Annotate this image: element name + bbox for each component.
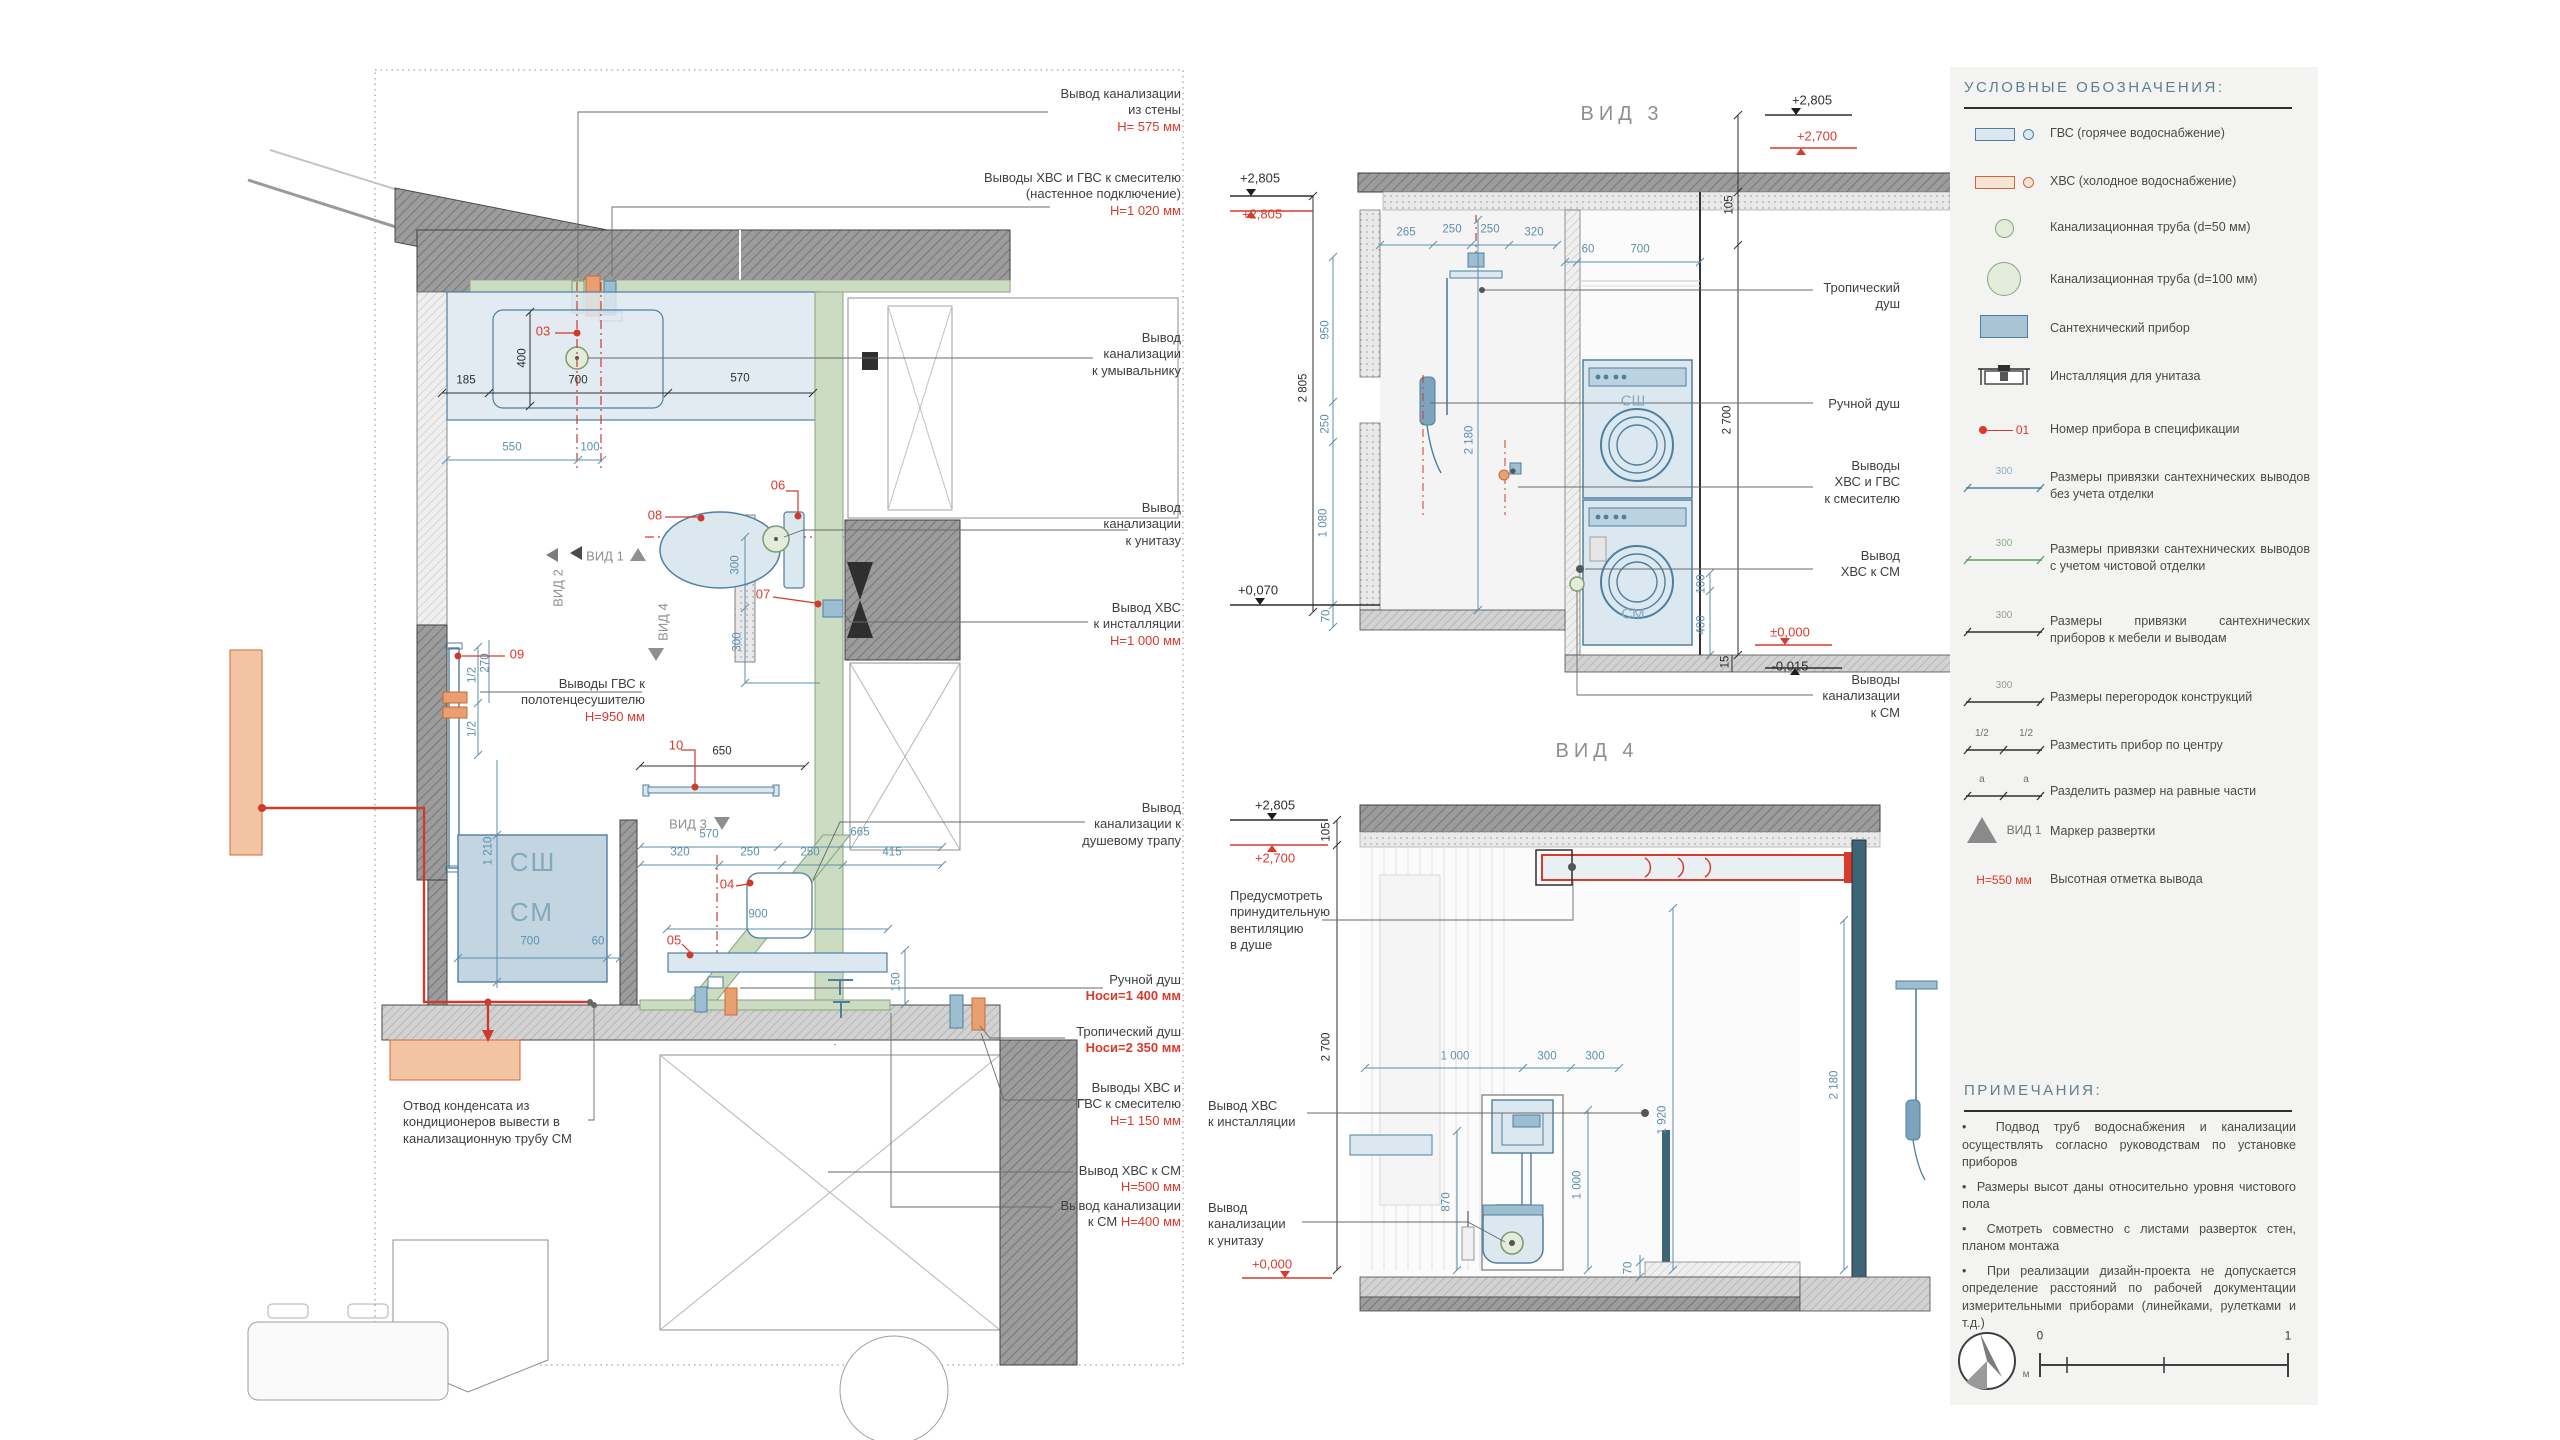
plan-vid4-label: ВИД 4 [657,603,670,641]
dim-green-icon: 300 [1958,549,2050,571]
v3-dim-700: 700 [1630,244,1649,256]
view1-arrow-left-icon [570,546,582,560]
v3-dim-400: 400 [1696,615,1708,634]
v4-dim-2180: 2 180 [1829,1071,1841,1100]
view4-arrow-down-icon [648,648,664,661]
callout-hvs-installation: Вывод ХВС к инсталляцииH=1 000 мм [1094,600,1181,649]
v3-dim-250b: 250 [1480,224,1499,236]
plan-dim-650: 650 [712,746,731,758]
legend-item: 300 Размеры привязки сантехнических выво… [1958,539,2310,575]
plan-dim-185: 185 [456,375,475,387]
number-icon: 01 [1958,419,2050,441]
legend-panel: УСЛОВНЫЕ ОБОЗНАЧЕНИЯ: ГВС (горячее водос… [1950,67,2318,1405]
v4-dim-300b: 300 [1585,1051,1604,1063]
pipe100-icon [1958,261,2050,297]
dim-equal-icon: a a [1958,785,2050,807]
v3-callout-hand-shower: Ручной душ [1828,396,1900,412]
legend-item: 300 Размеры привязки сантехнических приб… [1958,611,2310,647]
notes-rule [1964,1110,2292,1112]
legend-title: УСЛОВНЫЕ ОБОЗНАЧЕНИЯ: [1964,79,2225,96]
legend-item: 300 Размеры привязки сантехнических выво… [1958,467,2310,503]
plan-dim-60: 60 [592,936,605,948]
v3-level-bottomleft: +0,070 [1238,584,1278,597]
plan-dim-300b: 300 [732,632,744,651]
plan-dim-700c: 700 [520,936,539,948]
note-item: • Размеры высот даны относительно уровня… [1962,1179,2296,1214]
v4-dim-1000: 1 000 [1441,1051,1470,1063]
legend-item: Канализационная труба (d=100 мм) [1958,261,2310,297]
plan-dim-570: 570 [730,373,749,385]
v4-dim-70: 70 [1623,1262,1635,1275]
plan-marker-09: 09 [510,647,524,662]
plan-vid1-label: ВИД 1 [586,550,624,563]
height-mark-icon: H=550 мм [1958,869,2050,891]
v4-level-zero-red: +0,000 [1252,1258,1292,1271]
note-item: • Смотреть совместно с листами разверток… [1962,1221,2296,1256]
plan-label-sm: СМ [510,899,554,925]
callout-hvs-sm: Вывод ХВС к СМH=500 мм [1079,1163,1181,1196]
callout-sewer-wall: Вывод канализации из стеныH= 575 мм [1060,86,1181,135]
dim-blue-icon: 300 [1958,477,2050,499]
v4-dim-1000v: 1 000 [1572,1171,1584,1200]
v3-level-zero: ±0,000 [1770,626,1810,639]
callout-hand-shower: Ручной душHоси=1 400 мм [1086,972,1181,1005]
plan-marker-05: 05 [667,933,681,948]
v3-label-sm: СМ [1621,607,1644,622]
plan-dim-320: 320 [670,847,689,859]
v3-dim-1080: 1 080 [1318,509,1330,538]
v4-dim-870: 870 [1441,1192,1453,1211]
plan-marker-06: 06 [771,478,785,493]
v3-level-topleft-red: +2,805 [1242,208,1282,221]
legend-item: a a Разделить размер на равные части [1958,775,2310,807]
v3-dim-320: 320 [1524,227,1543,239]
v3-level-topright-red: +2,700 [1797,130,1837,143]
scale-one: 1 [2285,1331,2291,1343]
floor-plan-drawing [228,60,1188,1400]
v4-dim-1920: 1 920 [1657,1106,1669,1135]
v3-dim-100: 100 [1696,574,1708,593]
plan-vid3-label: ВИД 3 [669,818,707,831]
notes-list: • Подвод труб водоснабжения и канализаци… [1962,1119,2296,1340]
v3-callout-mixer: Выводы ХВС и ГВС к смесителю [1824,458,1900,507]
dim-black-icon: 300 [1958,691,2050,713]
installation-icon [1958,363,2050,389]
fixture-icon [1958,315,2050,338]
plan-dim-550: 550 [502,442,521,454]
v3-callout-sewer-sm: Выводы канализации к СМ [1822,672,1900,721]
plan-dim-665: 665 [850,827,869,839]
plan-dim-half1: 1/2 [467,667,479,683]
v4-callout-hvs: Вывод ХВС к инсталляции [1208,1098,1295,1131]
callout-toilet-sewer: Вывод канализации к унитазу [1103,500,1181,549]
plan-dim-300a: 300 [730,555,742,574]
plumbing-drawing-sheet: 185 700 570 400 550 100 650 300 300 570 … [0,0,2560,1440]
v3-dim-70: 70 [1321,610,1333,623]
legend-item: 01 Номер прибора в спецификации [1958,419,2310,441]
hvs-icon [1958,171,2050,193]
v3-dim-15: 15 [1720,656,1732,669]
legend-item: 1/2 1/2 Разместить прибор по центру [1958,729,2310,761]
plan-dim-100: 100 [580,442,599,454]
legend-item: ГВС (горячее водоснабжение) [1958,123,2310,145]
legend-item: 300 Размеры перегородок конструкций [1958,681,2310,713]
legend-item: Инсталляция для унитаза [1958,363,2310,389]
scale-zero: 0 [2037,1331,2043,1343]
note-item: • Подвод труб водоснабжения и канализаци… [1962,1119,2296,1172]
legend-item: Сантехнический прибор [1958,315,2310,338]
v4-level-top: +2,805 [1255,799,1295,812]
v4-dim-300a: 300 [1537,1051,1556,1063]
v3-callout-hvs-sm: Вывод ХВС к СМ [1841,548,1900,581]
scale-unit: м [2023,1370,2030,1380]
v3-dim-2805: 2 805 [1298,374,1310,403]
dim-center-icon: 1/2 1/2 [1958,739,2050,761]
legend-rule [1964,107,2292,109]
plan-dim-250b: 250 [800,847,819,859]
callout-shower-mixer: Выводы ХВС и ГВС к смесителюH=1 150 мм [1077,1080,1181,1129]
plan-marker-03: 03 [536,324,550,339]
callout-rain-shower: Тропический душHоси=2 350 мм [1076,1024,1181,1057]
legend-item: ХВС (холодное водоснабжение) [1958,171,2310,193]
view4-drawing [1200,775,1940,1345]
gvs-icon [1958,123,2050,145]
v3-dim-250a: 250 [1442,224,1461,236]
plan-dim-900: 900 [748,909,767,921]
note-condensate: Отвод конденсата из кондиционеров вывест… [403,1098,572,1147]
plan-marker-08: 08 [648,508,662,523]
plan-label-ssh: СШ [510,849,557,875]
v4-dim-2700: 2 700 [1321,1033,1333,1062]
plan-dim-1210: 1 210 [483,837,495,866]
plan-dim-270: 270 [480,653,492,672]
v4-level-top-red: +2,700 [1255,852,1295,865]
plan-dim-half2: 1/2 [467,721,479,737]
scale-bar [2034,1325,2298,1395]
legend-item: Канализационная труба (d=50 мм) [1958,217,2310,239]
plan-marker-04: 04 [720,877,734,892]
v3-callout-rain-shower: Тропический душ [1823,280,1900,313]
v3-dim-265: 265 [1396,227,1415,239]
view1-arrow-up-icon [630,548,646,561]
callout-towel-rail: Выводы ГВС к полотенцесушителюH=950 мм [521,676,645,725]
callout-sink-sewer: Вывод канализации к умывальнику [1092,330,1181,379]
v3-dim-105: 105 [1724,195,1736,214]
plan-vid2-label: ВИД 2 [552,569,565,607]
v3-dim-250c: 250 [1320,414,1332,433]
plan-dim-150: 150 [891,972,903,991]
callout-sewer-sm: Вывод канализации к СМ H=400 мм [1060,1198,1181,1231]
v3-level-topright: +2,805 [1792,94,1832,107]
legend-item: ВИД 1 Маркер развертки [1958,815,2310,845]
v3-dim-2180: 2 180 [1464,426,1476,455]
view3-arrow-down-icon [714,817,730,830]
plan-dim-250a: 250 [740,847,759,859]
plan-dim-700: 700 [568,375,587,387]
plan-dim-415: 415 [882,847,901,859]
callout-mixer-wall: Выводы ХВС и ГВС к смесителю (настенное … [984,170,1181,219]
view-marker-icon: ВИД 1 [1958,815,2050,845]
v3-dim-2700: 2 700 [1722,406,1734,435]
v4-callout-kanaliz: Вывод канализации к унитазу [1208,1200,1286,1249]
v3-label-ssh: СШ [1621,394,1646,409]
v3-level-minus15: -0,015 [1772,660,1809,673]
view4-title: ВИД 4 [1556,740,1639,763]
dim-black-icon: 300 [1958,621,2050,643]
plan-marker-07: 07 [756,587,770,602]
v4-callout-vent: Предусмотреть принудительную вентиляцию … [1230,888,1330,953]
legend-item: H=550 мм Высотная отметка вывода [1958,869,2310,891]
pipe50-icon [1958,217,2050,239]
view2-arrow-left-icon [546,548,558,562]
v3-dim-950: 950 [1320,320,1332,339]
v4-dim-105: 105 [1321,822,1333,841]
north-compass-icon [1954,1325,2020,1395]
plan-marker-10: 10 [669,738,683,753]
v3-level-topleft: +2,805 [1240,172,1280,185]
note-item: • При реализации дизайн-проекта не допус… [1962,1263,2296,1333]
plan-dim-400: 400 [517,348,529,367]
notes-title: ПРИМЕЧАНИЯ: [1964,1082,2102,1099]
v3-dim-60: 60 [1582,244,1595,256]
callout-shower-drain: Вывод канализации к душевому трапу [1082,800,1181,849]
